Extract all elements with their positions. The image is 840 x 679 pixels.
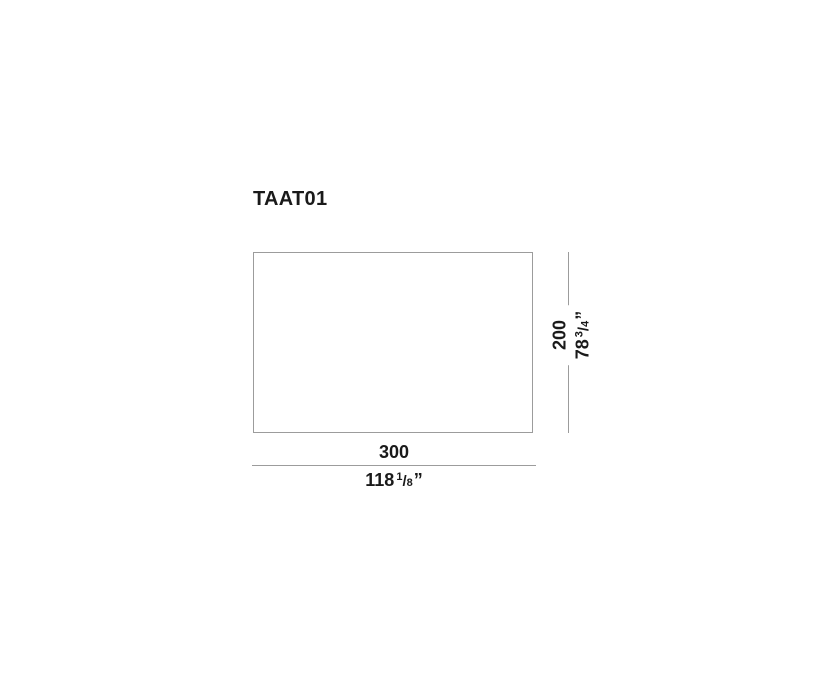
height-fraction-denominator: 4 bbox=[580, 321, 592, 327]
width-fraction-denominator: 8 bbox=[407, 477, 413, 489]
height-dimension-label: 200 783/4” bbox=[547, 305, 598, 365]
height-inches-value: 783/4” bbox=[572, 311, 595, 359]
width-cm-value: 300 bbox=[252, 444, 536, 460]
product-code: TAAT01 bbox=[253, 188, 327, 211]
height-inches-whole: 78 bbox=[573, 339, 593, 359]
width-unit-mark: ” bbox=[414, 470, 423, 490]
height-fraction-slash: / bbox=[576, 327, 593, 331]
height-fraction-numerator: 3 bbox=[574, 331, 586, 337]
tabletop-outline bbox=[253, 252, 533, 433]
width-dimension-line bbox=[252, 465, 536, 466]
width-inches-whole: 118 bbox=[365, 470, 394, 490]
dimension-drawing: TAAT01 200 783/4” 300 1181/8” bbox=[0, 0, 840, 679]
width-fraction-slash: / bbox=[402, 473, 406, 490]
height-unit-mark: ” bbox=[573, 311, 593, 320]
height-cm-value: 200 bbox=[549, 311, 572, 359]
width-inches-value: 1181/8” bbox=[252, 469, 536, 491]
